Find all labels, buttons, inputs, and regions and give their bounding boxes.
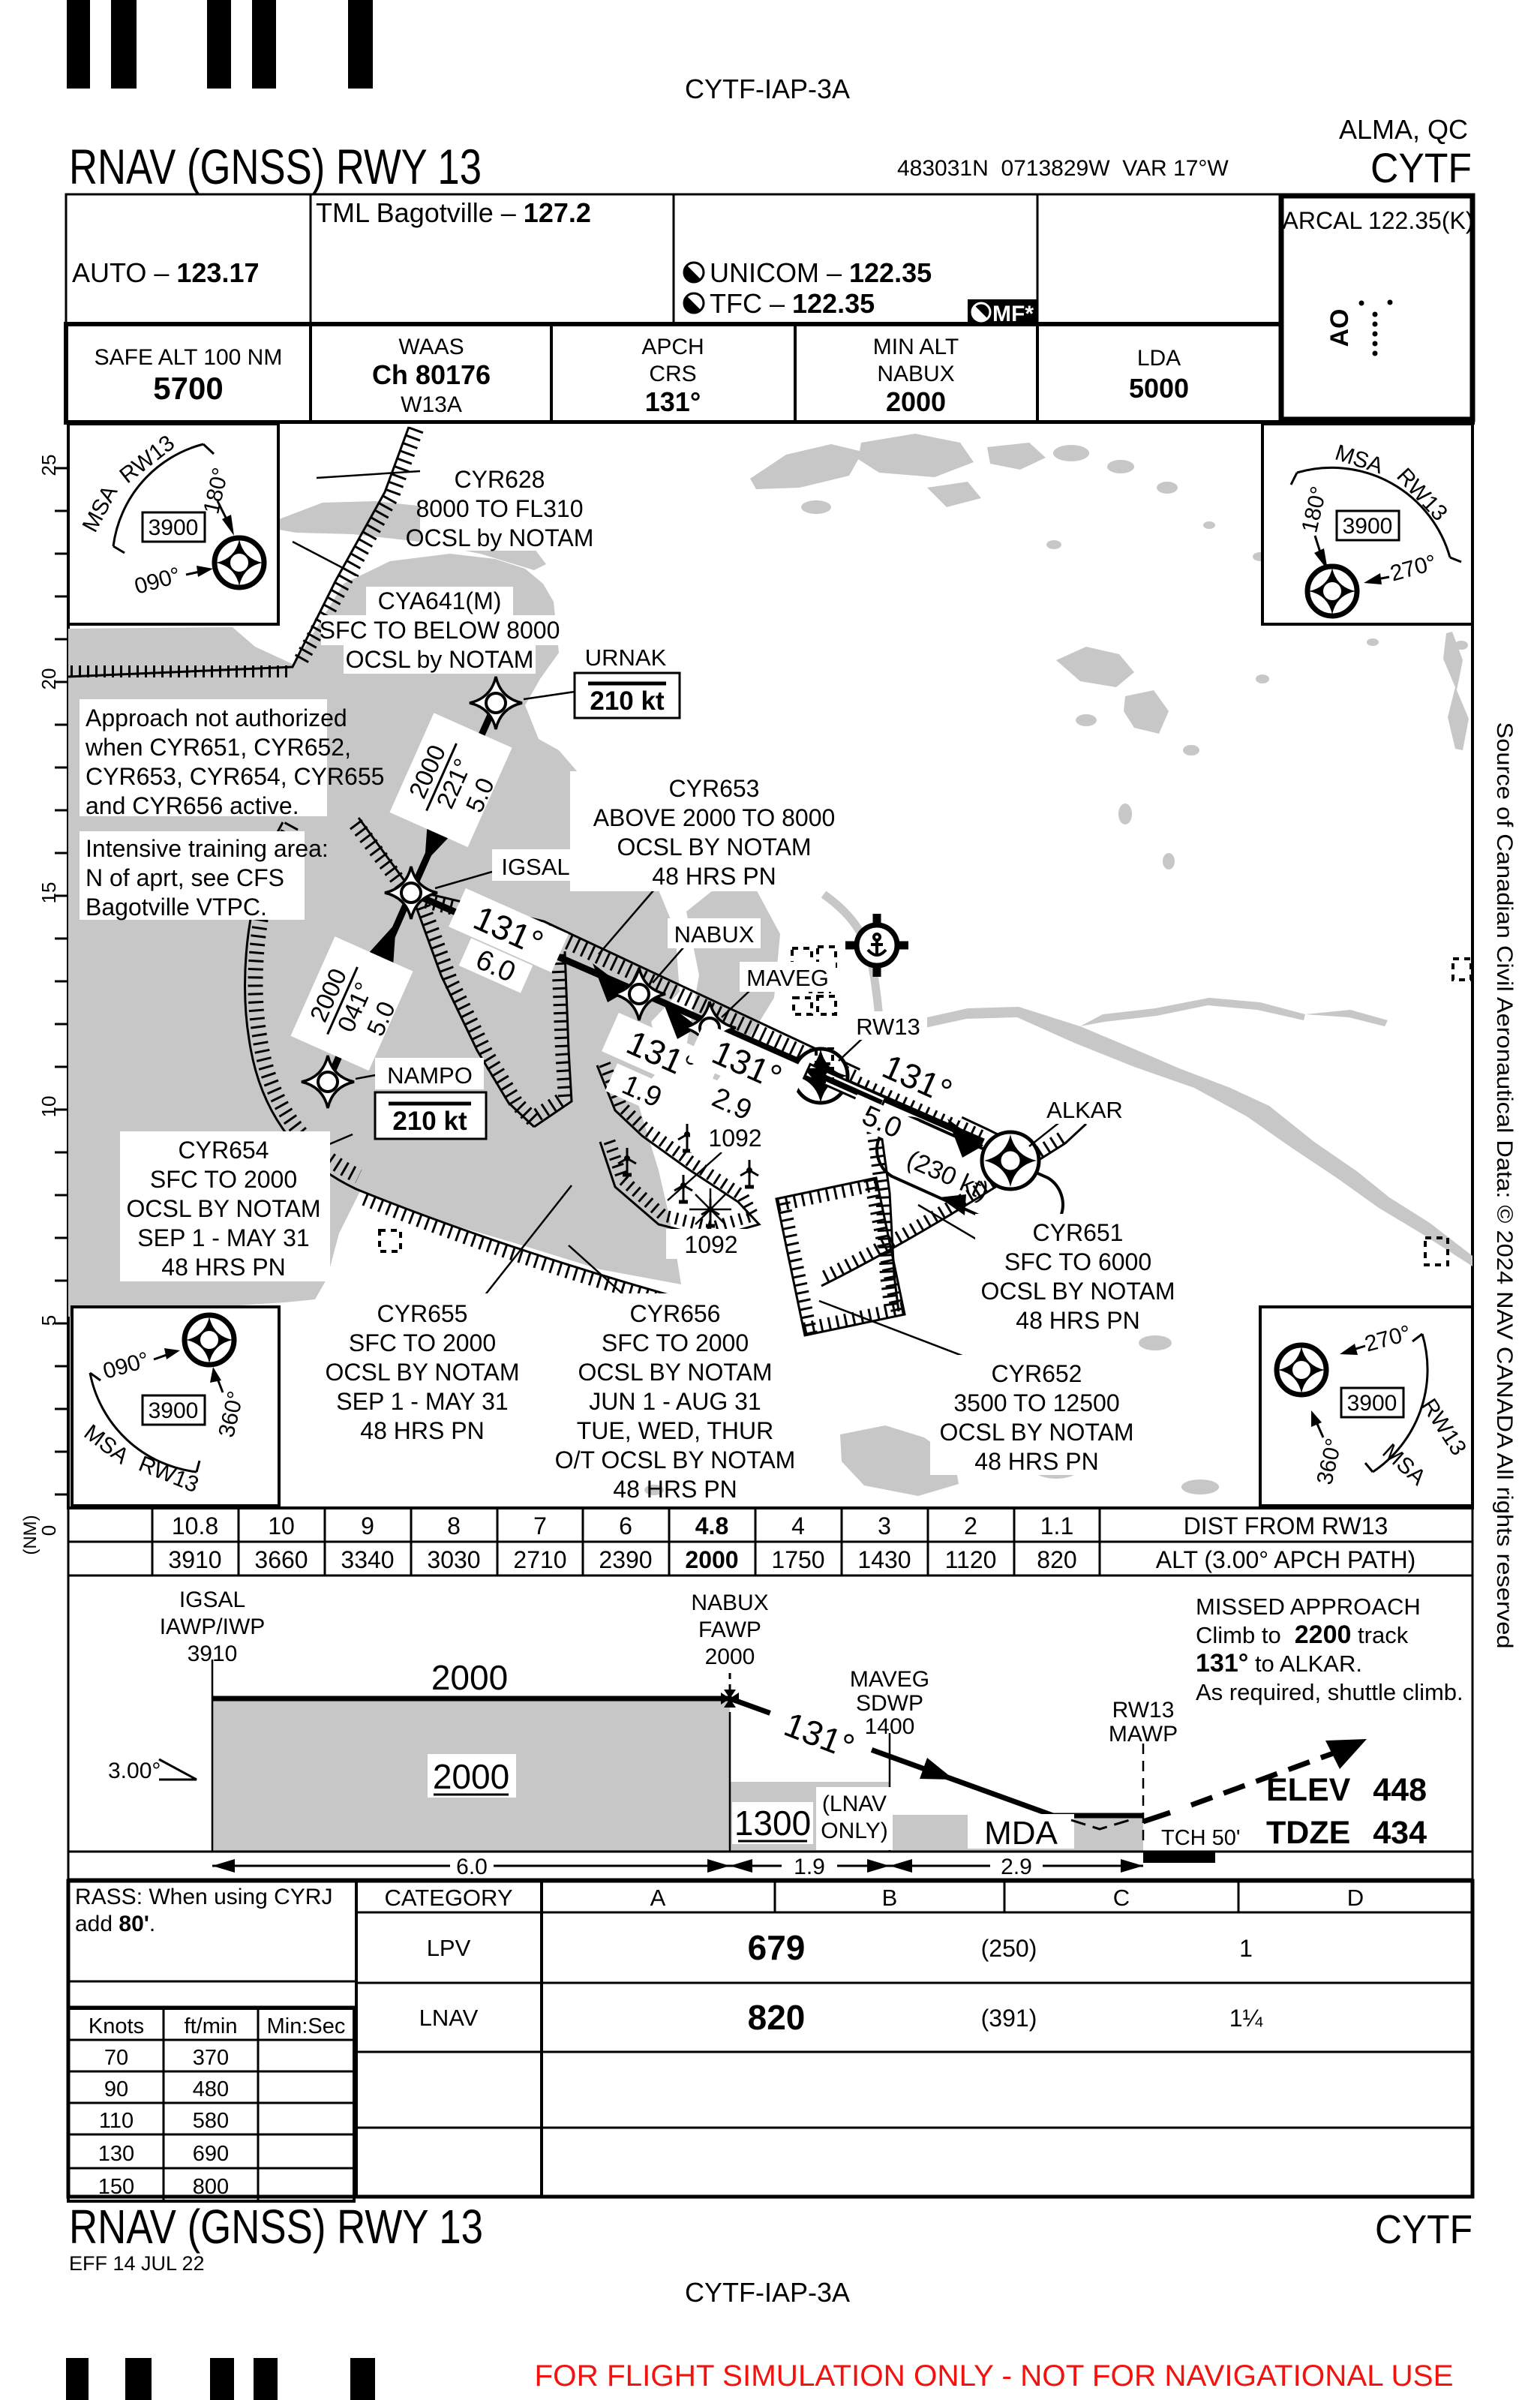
svg-text:CYTF: CYTF	[1370, 144, 1472, 191]
svg-text:131° to ALKAR.: 131° to ALKAR.	[1196, 1649, 1362, 1678]
svg-text:130: 130	[98, 2142, 134, 2166]
svg-text:D: D	[1347, 1885, 1364, 1911]
svg-text:W13A: W13A	[401, 392, 462, 417]
svg-text:OCSL BY NOTAM: OCSL BY NOTAM	[980, 1278, 1175, 1305]
svg-text:LNAV: LNAV	[419, 2005, 479, 2031]
svg-text:O/T OCSL BY NOTAM: O/T OCSL BY NOTAM	[555, 1446, 796, 1473]
svg-text:1.1: 1.1	[1040, 1512, 1073, 1539]
svg-text:ALMA, QC: ALMA, QC	[1339, 114, 1468, 145]
svg-text:2.9: 2.9	[1001, 1855, 1032, 1879]
svg-text:MAVEG: MAVEG	[746, 965, 829, 991]
svg-text:RASS: When using CYRJ: RASS: When using CYRJ	[75, 1885, 332, 1909]
svg-text:820: 820	[748, 1998, 806, 2037]
svg-text:7: 7	[533, 1512, 547, 1539]
svg-text:6.0: 6.0	[456, 1855, 488, 1879]
svg-text:MF*: MF*	[992, 302, 1034, 326]
svg-text:IGSAL: IGSAL	[179, 1587, 245, 1612]
svg-text:Min:Sec: Min:Sec	[267, 2014, 346, 2038]
svg-text:5700: 5700	[153, 371, 223, 406]
svg-text:48 HRS PN: 48 HRS PN	[360, 1417, 484, 1444]
svg-text:48 HRS PN: 48 HRS PN	[1016, 1307, 1139, 1334]
svg-text:ELEV: ELEV	[1266, 1772, 1351, 1808]
svg-text:CYR656: CYR656	[630, 1300, 721, 1327]
svg-text:3340: 3340	[341, 1546, 394, 1573]
svg-text:TDZE: TDZE	[1266, 1815, 1350, 1851]
svg-text:CATEGORY: CATEGORY	[384, 1885, 512, 1911]
svg-text:CYR655: CYR655	[377, 1300, 468, 1327]
svg-text:OCSL by NOTAM: OCSL by NOTAM	[346, 646, 534, 673]
svg-text:SFC TO BELOW 8000: SFC TO BELOW 8000	[320, 617, 560, 644]
svg-text:TCH 50': TCH 50'	[1161, 1826, 1240, 1850]
svg-text:434: 434	[1373, 1815, 1427, 1851]
svg-text:ft/min: ft/min	[185, 2014, 238, 2038]
svg-text:OCSL BY NOTAM: OCSL BY NOTAM	[578, 1359, 772, 1386]
svg-text:OCSL BY NOTAM: OCSL BY NOTAM	[939, 1419, 1133, 1446]
svg-text:Source of Canadian Civil Aeron: Source of Canadian Civil Aeronautical Da…	[1492, 722, 1517, 1649]
svg-text:480: 480	[193, 2077, 229, 2101]
svg-text:NAMPO: NAMPO	[387, 1062, 473, 1089]
svg-text:NABUX: NABUX	[877, 362, 954, 386]
svg-text:As required, shuttle climb.: As required, shuttle climb.	[1196, 1679, 1463, 1705]
svg-text:1400: 1400	[865, 1714, 915, 1739]
svg-text:OCSL BY NOTAM: OCSL BY NOTAM	[126, 1195, 320, 1222]
svg-text:EFF 14 JUL 22: EFF 14 JUL 22	[69, 2252, 205, 2275]
svg-text:2000: 2000	[431, 1658, 508, 1697]
svg-text:1120: 1120	[945, 1546, 997, 1573]
svg-text:TFC – 122.35: TFC – 122.35	[710, 288, 875, 319]
svg-text:RW13: RW13	[1112, 1698, 1175, 1723]
svg-text:48 HRS PN: 48 HRS PN	[161, 1254, 285, 1281]
svg-text:CYR651: CYR651	[1033, 1219, 1124, 1246]
svg-text:131°: 131°	[645, 386, 701, 417]
svg-text:(250): (250)	[981, 1935, 1037, 1962]
svg-text:Climb to 2200 track: Climb to 2200 track	[1196, 1621, 1409, 1649]
svg-text:LPV: LPV	[427, 1935, 471, 1961]
svg-text:TUE, WED, THUR: TUE, WED, THUR	[577, 1417, 774, 1444]
svg-text:1: 1	[1239, 1935, 1253, 1962]
svg-text:SDWP: SDWP	[856, 1691, 923, 1716]
svg-text:1¼: 1¼	[1229, 2005, 1264, 2032]
svg-text:OCSL BY NOTAM: OCSL BY NOTAM	[617, 834, 811, 861]
svg-text:SEP 1 - MAY 31: SEP 1 - MAY 31	[137, 1224, 309, 1251]
svg-text:Bagotville VTPC.: Bagotville VTPC.	[86, 894, 267, 921]
svg-text:1092: 1092	[684, 1231, 737, 1258]
svg-text:2000: 2000	[433, 1757, 509, 1796]
svg-text:3900: 3900	[1343, 514, 1393, 539]
svg-text:when CYR651, CYR652,: when CYR651, CYR652,	[85, 734, 351, 761]
svg-text:1750: 1750	[771, 1546, 824, 1573]
svg-text:9: 9	[361, 1512, 374, 1539]
svg-text:48 HRS PN: 48 HRS PN	[974, 1448, 1098, 1475]
svg-text:APCH: APCH	[641, 335, 704, 359]
svg-text:CRS: CRS	[649, 362, 696, 386]
svg-text:3: 3	[878, 1512, 891, 1539]
svg-text:CYA641(M): CYA641(M)	[378, 587, 502, 614]
svg-text:CYTF-IAP-3A: CYTF-IAP-3A	[685, 74, 850, 104]
svg-text:3900: 3900	[149, 515, 199, 540]
svg-text:370: 370	[193, 2046, 229, 2070]
svg-text:679: 679	[748, 1928, 806, 1967]
svg-text:20: 20	[38, 668, 60, 690]
svg-text:820: 820	[1037, 1546, 1076, 1573]
svg-text:10.8: 10.8	[172, 1512, 218, 1539]
svg-text:2710: 2710	[513, 1546, 566, 1573]
svg-text:A: A	[650, 1885, 666, 1911]
svg-text:NABUX: NABUX	[691, 1590, 768, 1615]
svg-text:AO: AO	[1325, 309, 1354, 347]
svg-text:MISSED APPROACH: MISSED APPROACH	[1196, 1593, 1421, 1620]
svg-text:1430: 1430	[857, 1546, 911, 1573]
svg-text:DIST FROM RW13: DIST FROM RW13	[1184, 1512, 1388, 1539]
svg-text:OCSL BY NOTAM: OCSL BY NOTAM	[325, 1359, 519, 1386]
svg-text:Ch 80176: Ch 80176	[372, 359, 491, 390]
svg-text:SFC TO 2000: SFC TO 2000	[602, 1329, 749, 1356]
svg-text:TML Bagotville – 127.2: TML Bagotville – 127.2	[316, 197, 591, 228]
svg-text:ALT (3.00° APCH PATH): ALT (3.00° APCH PATH)	[1156, 1546, 1416, 1573]
svg-text:1092: 1092	[708, 1125, 761, 1152]
svg-text:3910: 3910	[188, 1642, 238, 1666]
svg-text:580: 580	[193, 2109, 229, 2133]
svg-text:3900: 3900	[149, 1398, 199, 1423]
svg-text:WAAS: WAAS	[398, 335, 464, 359]
svg-text:CYTF-IAP-3A: CYTF-IAP-3A	[685, 2277, 850, 2308]
svg-text:90: 90	[104, 2077, 128, 2101]
svg-text:ALKAR: ALKAR	[1046, 1097, 1123, 1123]
svg-text:25: 25	[38, 455, 60, 476]
svg-text:3900: 3900	[1347, 1391, 1397, 1416]
svg-text:70: 70	[104, 2046, 128, 2070]
svg-text:2000: 2000	[705, 1645, 755, 1669]
svg-text:SEP 1 - MAY 31: SEP 1 - MAY 31	[336, 1388, 508, 1415]
svg-text:448: 448	[1373, 1772, 1427, 1808]
svg-text:Approach not authorized: Approach not authorized	[86, 704, 347, 731]
svg-text:110: 110	[99, 2109, 134, 2133]
svg-text:SFC TO 6000: SFC TO 6000	[1004, 1248, 1151, 1275]
svg-text:3.00°: 3.00°	[108, 1759, 161, 1783]
svg-text:MDA: MDA	[984, 1815, 1058, 1852]
svg-text:10: 10	[38, 1096, 60, 1118]
svg-text:8000 TO FL310: 8000 TO FL310	[416, 495, 584, 522]
svg-text:4: 4	[791, 1512, 805, 1539]
svg-text:48 HRS PN: 48 HRS PN	[613, 1476, 737, 1503]
svg-text:URNAK: URNAK	[585, 644, 667, 671]
svg-text:IAWP/IWP: IAWP/IWP	[160, 1615, 266, 1639]
svg-text:4.8: 4.8	[695, 1512, 728, 1539]
svg-text:0: 0	[38, 1525, 60, 1536]
svg-text:15: 15	[38, 882, 60, 904]
svg-text:5000: 5000	[1129, 373, 1189, 404]
svg-text:add 80'.: add 80'.	[75, 1912, 155, 1936]
svg-text:MAWP: MAWP	[1109, 1722, 1178, 1747]
svg-text:ABOVE 2000 TO 8000: ABOVE 2000 TO 8000	[593, 804, 836, 831]
svg-text:IGSAL: IGSAL	[501, 854, 569, 880]
svg-text:(391): (391)	[981, 2005, 1037, 2032]
svg-text:CYR628: CYR628	[455, 466, 545, 493]
svg-text:5: 5	[38, 1315, 60, 1326]
svg-text:OCSL by NOTAM: OCSL by NOTAM	[406, 524, 594, 551]
svg-text:SAFE ALT 100 NM: SAFE ALT 100 NM	[95, 345, 283, 370]
svg-text:C: C	[1113, 1885, 1130, 1911]
svg-text:JUN 1 - AUG 31: JUN 1 - AUG 31	[589, 1388, 761, 1415]
svg-text:AUTO – 123.17: AUTO – 123.17	[72, 257, 260, 288]
svg-text:Intensive training area:: Intensive training area:	[86, 835, 329, 862]
svg-text:2000: 2000	[886, 386, 946, 417]
svg-text:2: 2	[964, 1512, 977, 1539]
svg-text:RW13: RW13	[856, 1014, 920, 1040]
svg-text:CYR652: CYR652	[992, 1360, 1082, 1387]
svg-text:(NM): (NM)	[20, 1515, 41, 1554]
svg-text:FOR FLIGHT SIMULATION ONLY - N: FOR FLIGHT SIMULATION ONLY - NOT FOR NAV…	[535, 2359, 1454, 2392]
svg-text:690: 690	[193, 2142, 229, 2166]
svg-text:800: 800	[193, 2175, 229, 2199]
svg-text:N of aprt, see CFS: N of aprt, see CFS	[86, 864, 284, 891]
svg-text:2390: 2390	[599, 1546, 652, 1573]
svg-text:150: 150	[98, 2175, 134, 2199]
svg-text:48 HRS PN: 48 HRS PN	[652, 863, 776, 890]
svg-text:NABUX: NABUX	[674, 921, 755, 948]
svg-text:10: 10	[268, 1512, 295, 1539]
svg-text:ONLY): ONLY)	[821, 1819, 887, 1843]
svg-text:1300: 1300	[734, 1804, 811, 1843]
svg-text:CYR653, CYR654, CYR655: CYR653, CYR654, CYR655	[86, 763, 384, 790]
svg-text:RNAV (GNSS) RWY 13: RNAV (GNSS) RWY 13	[69, 2200, 483, 2254]
svg-text:ARCAL 122.35(K): ARCAL 122.35(K)	[1283, 207, 1474, 234]
svg-text:1.9: 1.9	[794, 1855, 825, 1879]
svg-text:and CYR656 active.: and CYR656 active.	[86, 792, 299, 819]
svg-text:FAWP: FAWP	[698, 1618, 761, 1642]
svg-text:210 kt: 210 kt	[392, 1107, 467, 1136]
svg-text:CYR654: CYR654	[179, 1137, 269, 1164]
svg-text:3660: 3660	[254, 1546, 308, 1573]
svg-text:CYTF: CYTF	[1375, 2207, 1472, 2252]
svg-text:3030: 3030	[427, 1546, 480, 1573]
svg-text:483031N 0713829W VAR 17°W: 483031N 0713829W VAR 17°W	[897, 156, 1229, 181]
svg-text:RNAV (GNSS) RWY 13: RNAV (GNSS) RWY 13	[69, 139, 482, 194]
svg-text:CYR653: CYR653	[669, 775, 760, 802]
svg-text:210 kt: 210 kt	[590, 686, 665, 716]
svg-text:8: 8	[447, 1512, 461, 1539]
svg-text:B: B	[882, 1885, 898, 1911]
svg-text:MAVEG: MAVEG	[850, 1667, 929, 1692]
svg-text:(LNAV: (LNAV	[822, 1792, 887, 1816]
svg-text:Knots: Knots	[89, 2014, 144, 2038]
svg-text:UNICOM – 122.35: UNICOM – 122.35	[710, 257, 932, 288]
svg-text:SFC TO 2000: SFC TO 2000	[150, 1166, 297, 1193]
svg-text:MIN ALT: MIN ALT	[873, 335, 959, 359]
svg-text:3910: 3910	[168, 1546, 221, 1573]
svg-text:6: 6	[619, 1512, 632, 1539]
svg-text:SFC TO 2000: SFC TO 2000	[349, 1329, 496, 1356]
svg-text:LDA: LDA	[1137, 346, 1181, 371]
svg-text:3500 TO 12500: 3500 TO 12500	[953, 1389, 1119, 1416]
svg-text:2000: 2000	[685, 1546, 738, 1573]
